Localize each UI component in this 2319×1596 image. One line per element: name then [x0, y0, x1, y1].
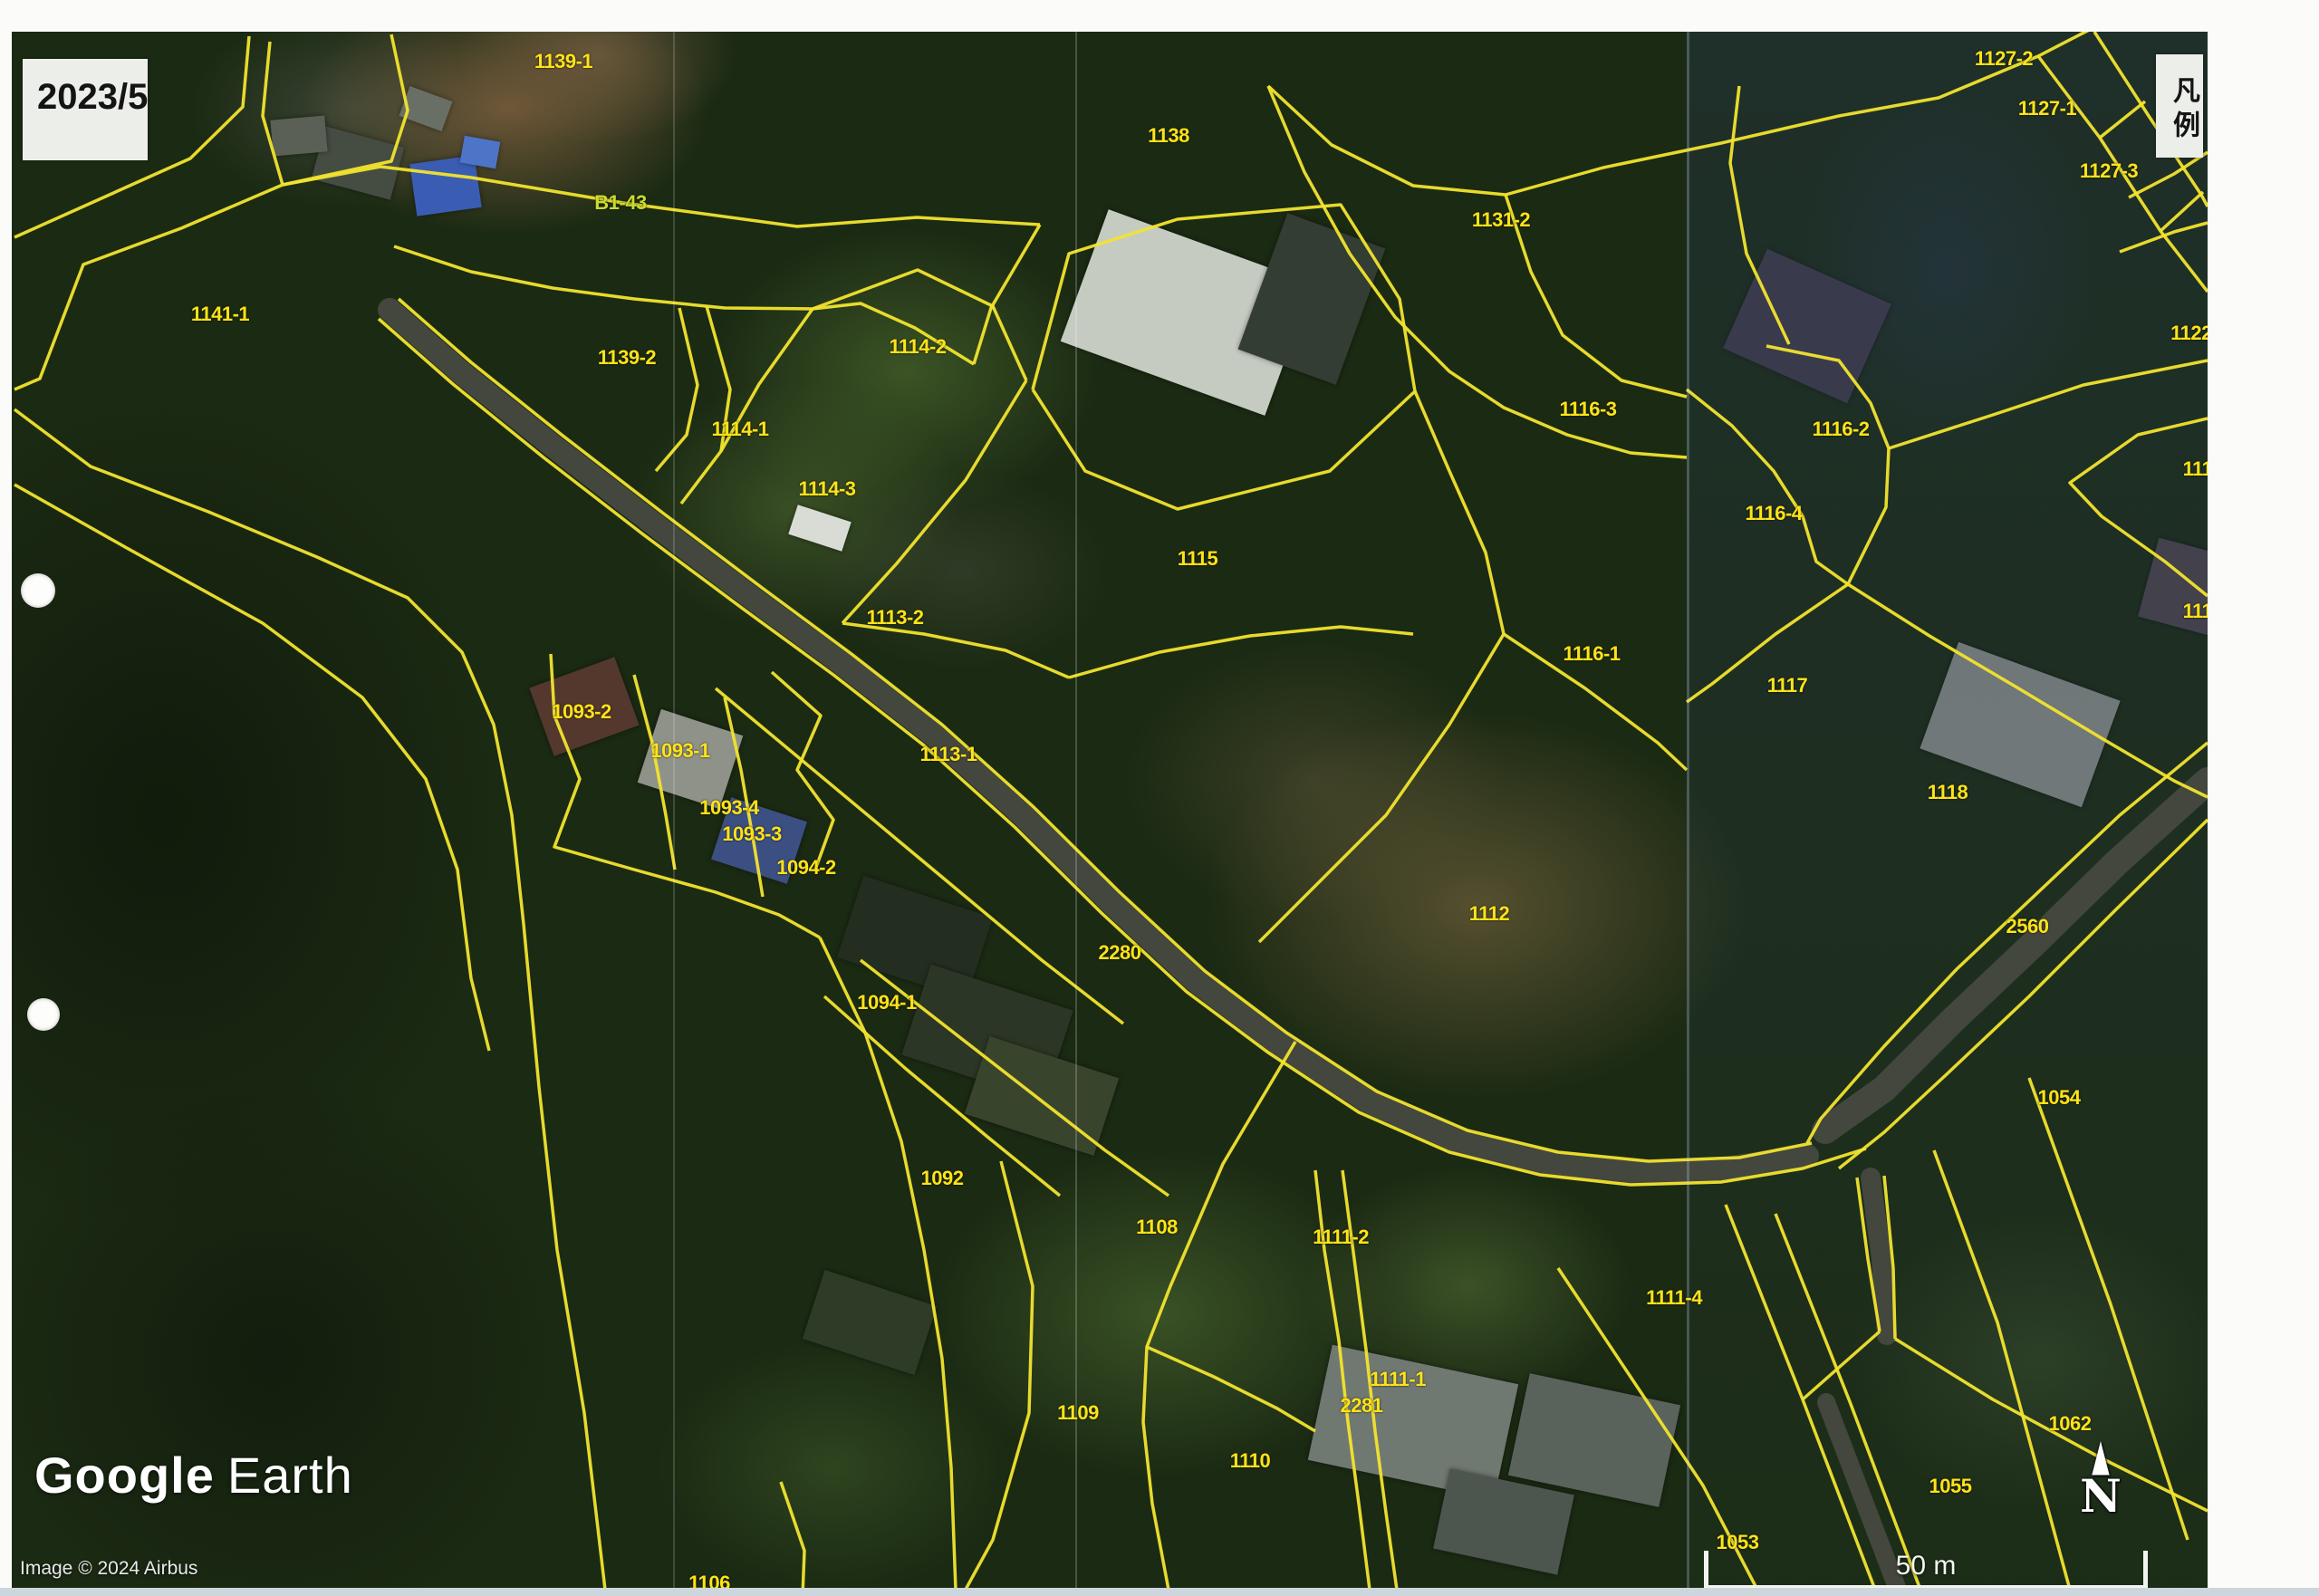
parcel-label: 1112: [1469, 902, 1510, 926]
parcel-label: 1114-2: [889, 335, 946, 359]
paper-margin-top: [0, 0, 2319, 32]
parcel-boundary: [1506, 195, 1687, 397]
parcel-boundary: [1147, 1347, 1315, 1431]
parcel-boundary: [14, 409, 605, 1588]
parcel-label: 1093-3: [722, 822, 782, 846]
parcel-boundary: [1934, 1150, 2070, 1588]
google-earth-satellite-image: 1141-21141-11139-1B1-431139-211381131-21…: [12, 32, 2208, 1588]
parcel-boundary: [1730, 86, 1789, 344]
parcel-boundary: [842, 380, 1026, 623]
parcel-boundary: [394, 246, 813, 309]
parcel-boundaries-layer: [12, 32, 2208, 1588]
parcel-label: 2280: [1099, 941, 1141, 965]
scale-bar: 50 m: [1704, 1551, 2148, 1588]
parcel-label: 1141-1: [191, 303, 249, 326]
road: [390, 310, 1807, 1173]
parcel-label: 1111-1: [1370, 1368, 1426, 1391]
parcel-label: 1115: [1178, 547, 1218, 571]
parcel-label: 1114-1: [711, 418, 768, 441]
date-badge: 2023/5: [23, 59, 148, 160]
parcel-label: 1092: [921, 1167, 964, 1190]
road: [1871, 1178, 1887, 1335]
parcel-label: 111: [2183, 457, 2208, 481]
paper-margin-left: [0, 0, 12, 1596]
parcel-label: B1-43: [594, 191, 646, 215]
parcel-boundary: [656, 308, 698, 471]
parcel-label: 1131-2: [1472, 208, 1530, 232]
scale-bar-label: 50 m: [1708, 1551, 2143, 1582]
imagery-attribution: Image © 2024 Airbus: [20, 1558, 197, 1580]
parcel-boundary: [681, 309, 813, 504]
parcel-label: 1108: [1136, 1216, 1178, 1239]
parcel-boundary: [1803, 1332, 1880, 1399]
parcel-label: 1116-3: [1559, 398, 1616, 421]
parcel-label: 1111-4: [1646, 1286, 1702, 1310]
parcel-label: 1111-2: [1313, 1226, 1369, 1249]
parcel-label: 1116-2: [1812, 418, 1869, 441]
parcel-boundary: [842, 623, 1069, 678]
parcel-boundary: [974, 225, 1040, 364]
parcel-label: 1138: [1148, 124, 1189, 148]
parcel-boundary: [1033, 205, 1415, 509]
parcel-label: 1117: [1767, 674, 1808, 697]
north-arrow-icon: ▲: [2077, 1430, 2125, 1483]
google-earth-logo: GoogleEarth: [34, 1446, 353, 1505]
parcel-boundary: [283, 167, 1040, 226]
google-earth-logo-earth: Earth: [227, 1447, 353, 1504]
legend-badge: 凡例: [2156, 54, 2203, 158]
parcel-boundary: [1143, 1042, 1295, 1588]
parcel-boundary: [962, 1161, 1033, 1588]
punch-hole: [27, 998, 60, 1031]
parcel-boundary: [2129, 152, 2208, 197]
parcel-label: 1055: [1929, 1475, 1972, 1498]
parcel-label: 1114-3: [798, 477, 855, 501]
paper-margin-right: [2208, 0, 2319, 1596]
parcel-boundary: [824, 996, 1060, 1196]
parcel-label: 1116-1: [1563, 642, 1620, 666]
parcel-label: 1094-2: [776, 856, 836, 880]
parcel-boundary: [1259, 634, 1504, 942]
parcel-label: 1113-2: [866, 606, 923, 630]
parcel-boundary: [1848, 584, 2208, 797]
parcel-label: 111: [2183, 600, 2208, 623]
parcel-boundary: [813, 270, 1026, 380]
parcel-boundary: [1268, 86, 1687, 457]
parcel-boundary: [1889, 361, 2208, 448]
parcel-boundary: [14, 485, 489, 1051]
road: [1825, 781, 2208, 1130]
parcel-label: 1094-1: [857, 991, 917, 1014]
paper-margin-bottom: [0, 1588, 2319, 1596]
parcel-boundary: [283, 34, 408, 185]
parcel-label: 1110: [1230, 1449, 1271, 1473]
parcel-label: 2560: [2006, 915, 2049, 938]
parcel-label: 1127-3: [2080, 159, 2138, 183]
parcel-boundary: [1807, 743, 2208, 1143]
parcel-boundary: [551, 654, 820, 937]
north-arrow: ▲ N: [2069, 1438, 2132, 1518]
parcel-label: 1118: [1928, 781, 1968, 804]
parcel-boundary: [2070, 418, 2208, 596]
punch-hole: [21, 573, 55, 608]
parcel-boundary: [2100, 101, 2145, 138]
parcel-label: 1127-1: [2018, 97, 2076, 120]
cadastral-map-scan: 1141-21141-11139-1B1-431139-211381131-21…: [0, 0, 2319, 1596]
parcel-label: 1054: [2038, 1086, 2081, 1110]
parcel-boundary: [1268, 32, 2094, 195]
parcel-label: 1139-1: [534, 50, 592, 73]
parcel-label: 1127-2: [1975, 47, 2033, 71]
parcel-label: 1106: [688, 1572, 730, 1588]
parcel-boundary: [634, 675, 675, 870]
parcel-label: 1109: [1057, 1401, 1099, 1425]
parcel-boundary: [379, 319, 1866, 1185]
google-earth-logo-google: Google: [34, 1447, 215, 1504]
parcel-boundary: [1766, 346, 1889, 584]
parcel-boundary: [1069, 627, 1413, 678]
parcel-boundary: [781, 1482, 804, 1588]
parcel-label: 1122: [2170, 322, 2208, 345]
parcel-label: 1139-2: [598, 346, 656, 370]
parcel-label: 2281: [1341, 1394, 1383, 1418]
parcel-boundary: [1415, 391, 1504, 634]
parcel-label: 1116-4: [1745, 502, 1802, 525]
parcel-label: 1093-4: [699, 796, 759, 820]
parcel-boundary: [1775, 1214, 1920, 1588]
parcel-boundary: [820, 937, 956, 1588]
parcel-label: 1093-1: [650, 739, 710, 763]
parcel-label: 1093-2: [552, 700, 611, 724]
parcel-boundary: [1839, 820, 2208, 1168]
parcel-label: 1113-1: [919, 743, 977, 766]
parcel-boundary: [399, 299, 1812, 1161]
